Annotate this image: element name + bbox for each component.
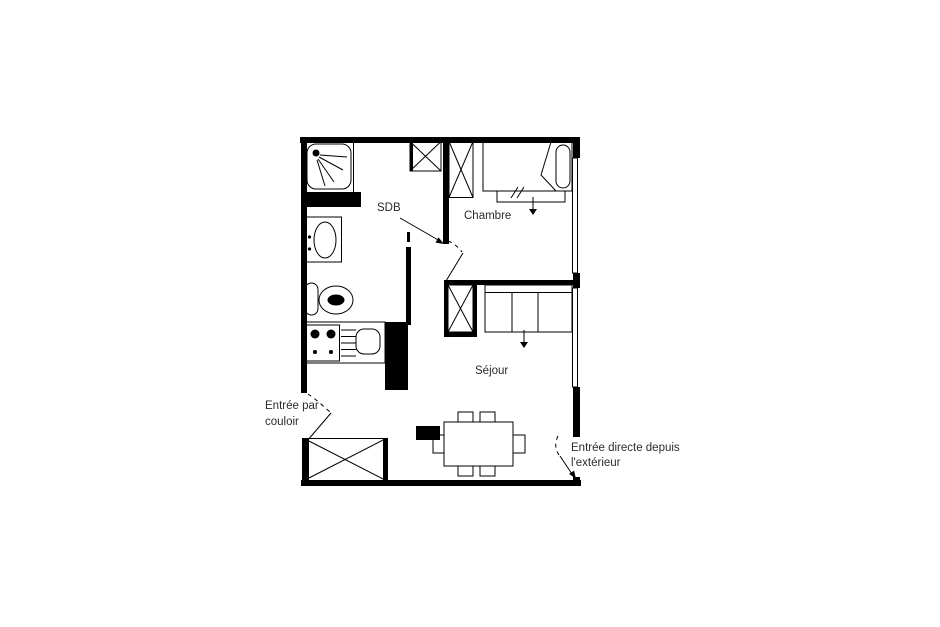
direction-arrow (400, 218, 440, 241)
window-bedroom-icon (573, 158, 578, 273)
bathroom-label: SDB (377, 202, 401, 214)
interior-walls (304, 140, 580, 390)
kitchen (305, 322, 385, 363)
burner-icon (329, 350, 333, 354)
shower (307, 141, 354, 192)
wardrobe-entry (302, 438, 388, 482)
stove (307, 325, 340, 361)
chair (458, 466, 473, 476)
bedroom-label: Chambre (464, 210, 511, 222)
door-swing (556, 436, 559, 455)
burner-icon (311, 330, 320, 339)
radiator (416, 426, 440, 440)
toilet-seat (328, 295, 345, 306)
window-living-icon (573, 288, 578, 387)
table-top (444, 422, 513, 466)
wall-bathroom-right (406, 247, 411, 325)
kitchen-sink (356, 329, 380, 354)
entry-direct-label-line2: l'extérieur (571, 457, 621, 469)
wall-bedroom-living (444, 280, 580, 285)
door-leaf (307, 413, 331, 441)
tap-icon (308, 235, 311, 238)
burner-icon (313, 350, 317, 354)
chair (458, 412, 473, 422)
entry-direct-label-line1: Entrée directe depuis (571, 442, 680, 454)
wall-right-top (573, 137, 580, 158)
wall-bathroom-doorpost (407, 232, 410, 242)
washbasin (305, 217, 342, 262)
pullout-arrowhead (520, 342, 528, 348)
door-swing (448, 241, 462, 252)
entry-corridor-label-line1: Entrée par (265, 400, 319, 412)
bed-frame (483, 142, 572, 192)
blanket-fold (541, 142, 556, 191)
floor-plan-canvas: SDB Chambre Séjour Entrée par couloir En… (0, 0, 940, 627)
bed (483, 142, 572, 216)
chair (513, 435, 525, 453)
wall-shower-stub (304, 192, 361, 207)
slash-mark (517, 187, 524, 198)
pillow (556, 145, 570, 188)
toilet (305, 283, 353, 315)
floor-plan-drawing: SDB Chambre Séjour Entrée par couloir En… (0, 0, 940, 627)
wall-bottom (301, 480, 581, 486)
sofa-bed (485, 285, 572, 348)
living-room-label: Séjour (475, 365, 508, 377)
wardrobe-living (444, 283, 477, 337)
wall-right-corner (573, 477, 580, 486)
tap-icon (308, 247, 311, 250)
door-leaf (446, 253, 463, 281)
wall-bedroom-left (443, 140, 449, 244)
wardrobe-bedroom (449, 142, 473, 198)
direction-arrowhead (436, 237, 445, 244)
bed-drawer (497, 191, 565, 202)
dining-table (433, 412, 525, 476)
wall-right-lower (573, 387, 580, 437)
drainer-lines (341, 330, 356, 356)
chair (480, 412, 495, 422)
wall-kitchen-block (385, 322, 408, 390)
wardrobe-bathroom (410, 141, 441, 171)
chair (480, 466, 495, 476)
entry-corridor-label-line2: couloir (265, 416, 299, 428)
burner-icon (327, 330, 336, 339)
pullout-arrowhead (529, 209, 537, 215)
shower-head-icon (313, 150, 320, 157)
washbasin-bowl (314, 222, 336, 258)
slash-mark (511, 187, 518, 198)
